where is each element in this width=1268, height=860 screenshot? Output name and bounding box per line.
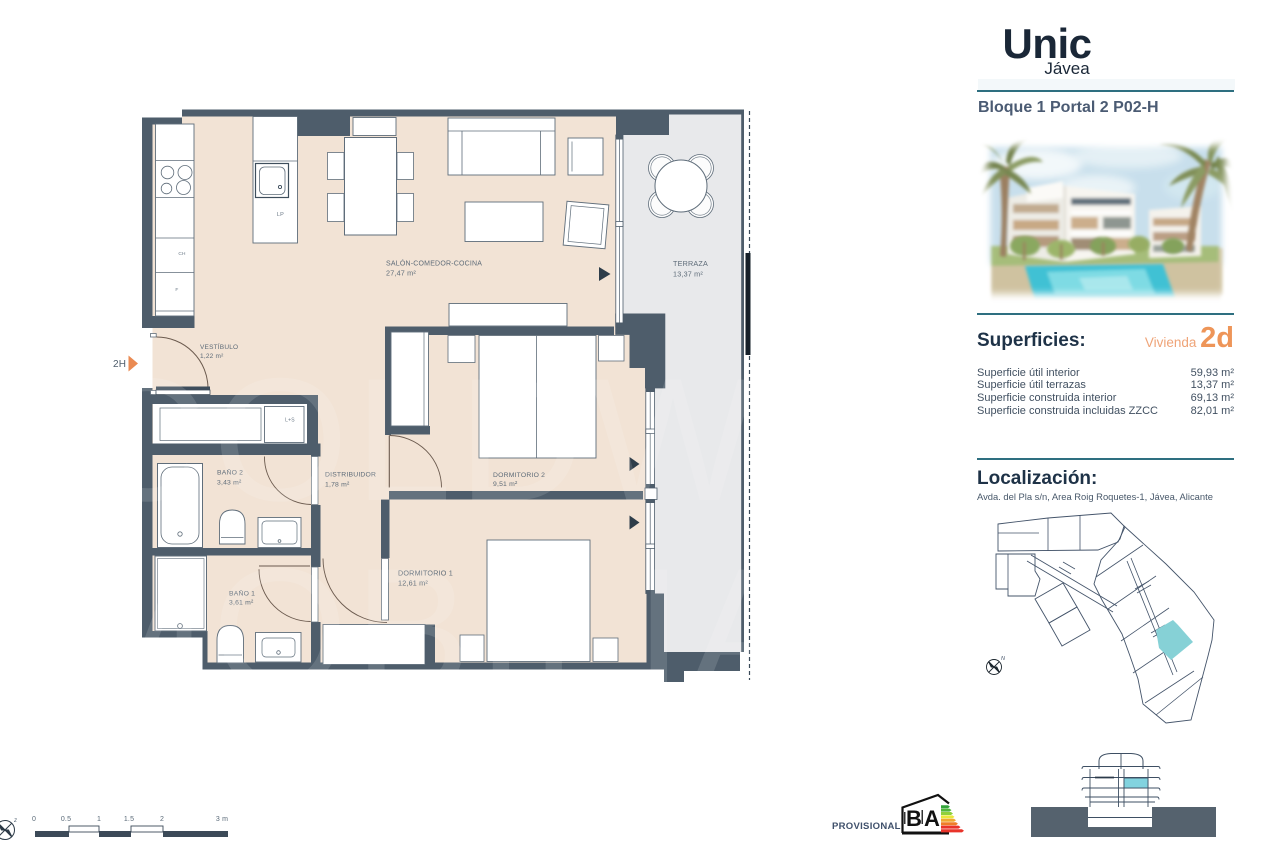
svg-text:TERRAZA: TERRAZA [673, 259, 708, 268]
svg-text:27,47 m²: 27,47 m² [386, 269, 416, 278]
svg-text:MOBILIARIA: MOBILIARIA [60, 533, 1122, 728]
svg-text:1.5: 1.5 [124, 816, 134, 823]
svg-text:A: A [924, 806, 940, 831]
svg-text:CH: CH [178, 251, 186, 257]
svg-text:F: F [175, 287, 178, 293]
svg-text:N: N [1001, 656, 1005, 662]
svg-text:1: 1 [97, 816, 101, 823]
svg-text:B: B [906, 806, 922, 831]
svg-text:LP: LP [277, 212, 284, 218]
svg-text:0: 0 [32, 816, 36, 823]
svg-text:3 m: 3 m [216, 816, 228, 823]
svg-text:z: z [13, 818, 17, 824]
svg-text:SALÓN-COMEDOR-COCINA: SALÓN-COMEDOR-COCINA [386, 259, 482, 268]
svg-text:0.5: 0.5 [61, 816, 71, 823]
svg-text:13,37 m²: 13,37 m² [673, 270, 703, 279]
svg-text:2: 2 [160, 816, 164, 823]
